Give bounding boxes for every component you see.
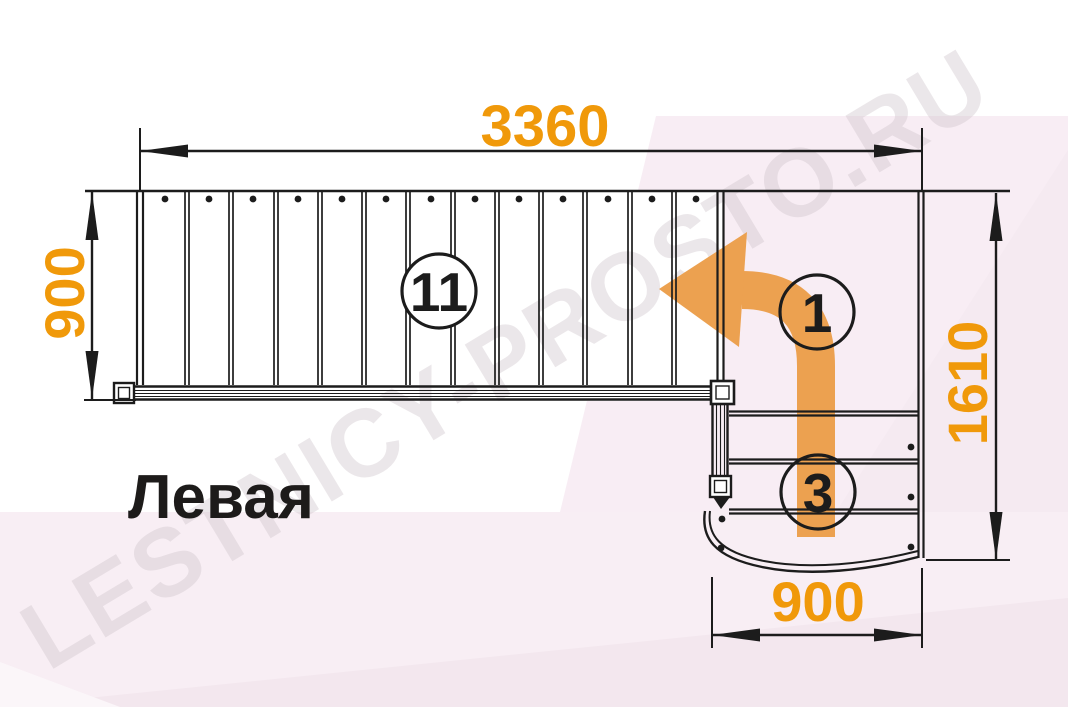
lower-flight-step-count: 3 bbox=[803, 462, 834, 524]
staircase-plan-drawing: LESTNICY-PROSTO.RU bbox=[0, 0, 1068, 707]
main-flight-stringer bbox=[133, 385, 714, 401]
turn-step-count: 1 bbox=[802, 282, 833, 344]
dimension-left-label: 900 bbox=[33, 246, 96, 339]
dimension-top-label: 3360 bbox=[480, 94, 609, 159]
corner-newel-post bbox=[711, 381, 734, 404]
dimension-right-label: 1610 bbox=[936, 321, 999, 446]
plan-canvas: LESTNICY-PROSTO.RU bbox=[0, 0, 1068, 707]
dimension-bottom-label: 900 bbox=[771, 570, 864, 633]
main-flight-step-count: 11 bbox=[410, 261, 468, 323]
variant-label: Левая bbox=[128, 463, 314, 532]
